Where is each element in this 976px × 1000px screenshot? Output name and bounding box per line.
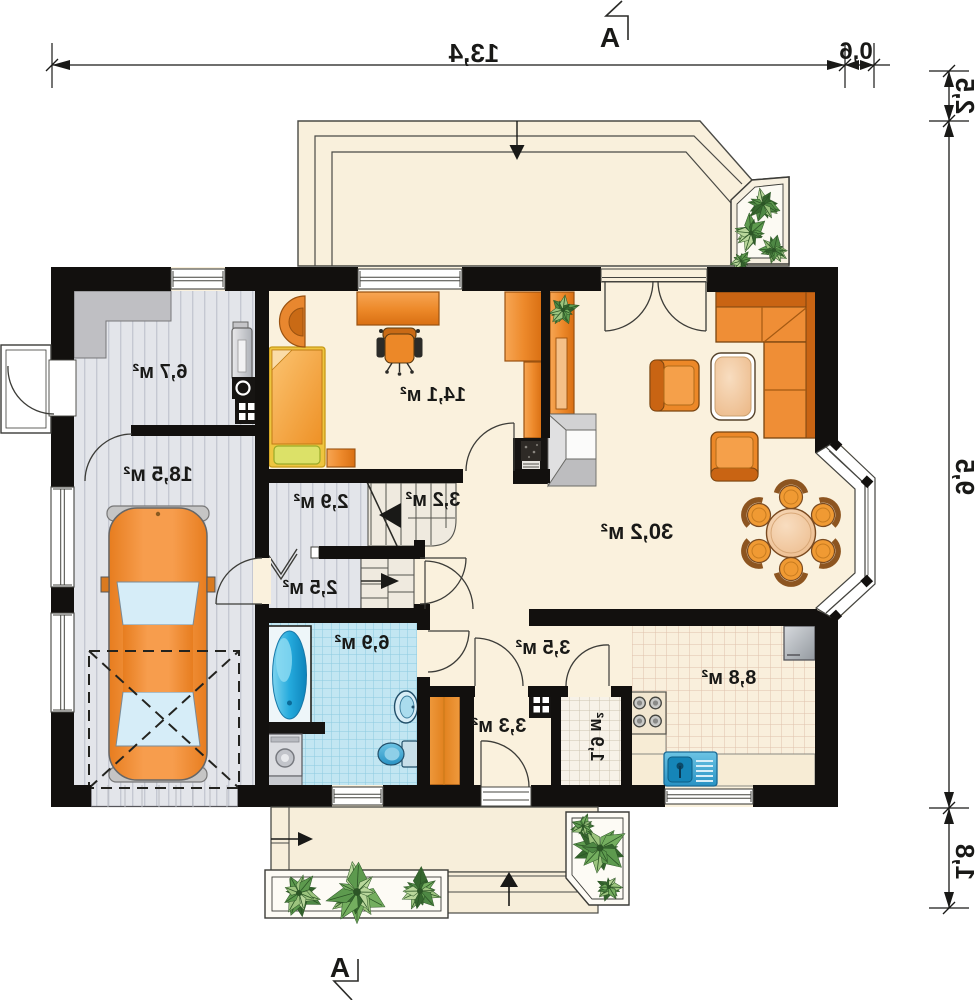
svg-text:A: A: [600, 22, 620, 53]
svg-text:14,1 м²: 14,1 м²: [400, 384, 466, 406]
svg-text:1,9 м²: 1,9 м²: [587, 712, 607, 761]
svg-text:3,5 м²: 3,5 м²: [515, 637, 570, 659]
svg-text:3,3 м²: 3,3 м²: [471, 715, 526, 737]
svg-text:6,7 м²: 6,7 м²: [132, 361, 187, 383]
svg-text:30,2 м²: 30,2 м²: [601, 519, 674, 544]
svg-text:2,5 м²: 2,5 м²: [282, 577, 337, 599]
svg-text:8,8 м²: 8,8 м²: [701, 667, 756, 689]
svg-text:13,4: 13,4: [448, 38, 499, 68]
svg-text:2,9 м²: 2,9 м²: [293, 491, 348, 513]
svg-text:2,5: 2,5: [950, 78, 976, 114]
svg-text:9,5: 9,5: [950, 459, 976, 495]
svg-text:A: A: [330, 952, 350, 983]
svg-text:6,9 м²: 6,9 м²: [334, 632, 389, 654]
svg-text:3,2 м²: 3,2 м²: [405, 489, 460, 511]
svg-text:0,6: 0,6: [839, 38, 872, 65]
svg-text:18,5 м²: 18,5 м²: [123, 463, 192, 486]
svg-text:1,8: 1,8: [950, 844, 976, 880]
